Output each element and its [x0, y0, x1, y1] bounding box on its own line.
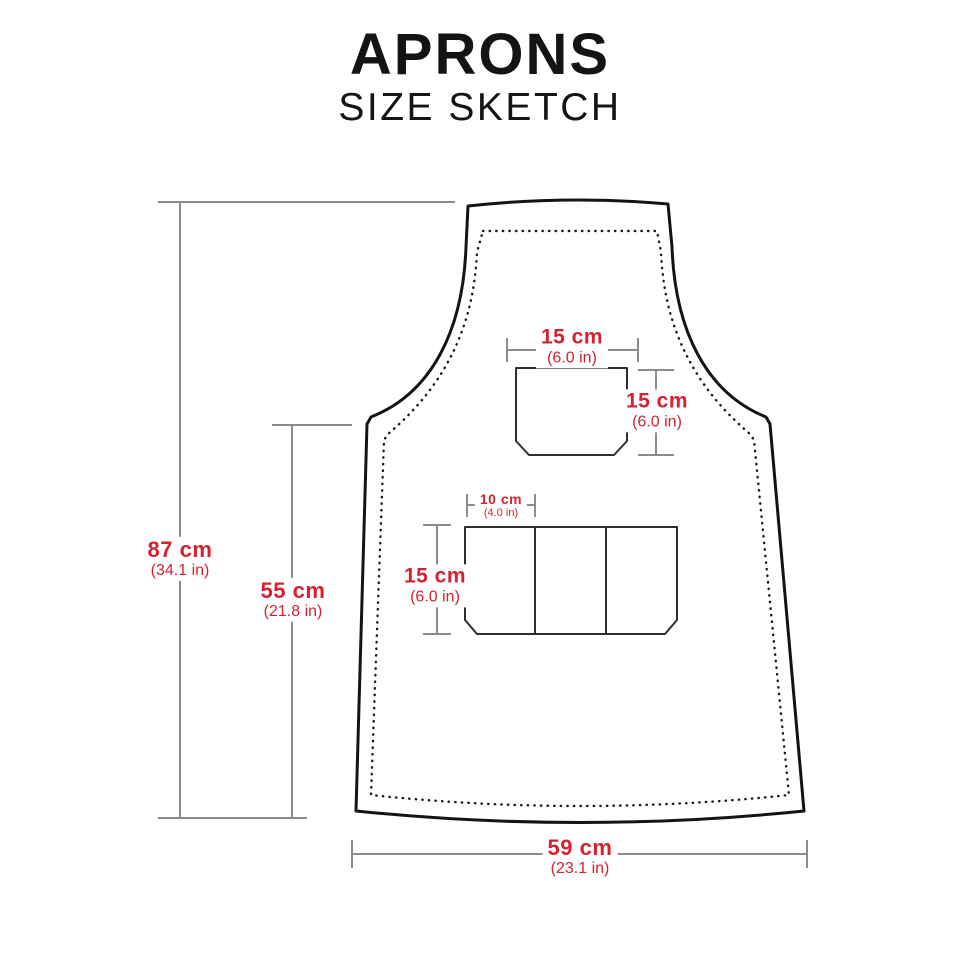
chest-pocket-height-alt: (6.0 in)	[626, 412, 688, 431]
apron-size-sketch-page: APRONS SIZE SKETCH	[0, 0, 960, 960]
waist-pocket-height-value: 15 cm	[404, 565, 466, 587]
chest-pocket-width-alt: (6.0 in)	[541, 348, 603, 367]
bottom-width-label: 59 cm (23.1 in)	[543, 835, 618, 879]
waist-height-value: 55 cm	[261, 579, 326, 602]
chest-pocket-height-value: 15 cm	[626, 390, 688, 412]
chest-pocket-width-label: 15 cm (6.0 in)	[536, 325, 608, 368]
waist-pocket-height-alt: (6.0 in)	[404, 587, 466, 606]
waist-pocket-section-width-alt: (4.0 in)	[480, 507, 522, 520]
apron-outline	[356, 200, 804, 823]
waist-pocket-section-width-label: 10 cm (4.0 in)	[475, 491, 527, 521]
apron-sketch	[0, 0, 960, 960]
bottom-width-value: 59 cm	[548, 836, 613, 859]
chest-pocket-height-label: 15 cm (6.0 in)	[621, 389, 693, 432]
waist-pocket	[465, 527, 677, 634]
waist-height-label: 55 cm (21.8 in)	[256, 578, 331, 622]
waist-height-alt: (21.8 in)	[261, 602, 326, 621]
bottom-width-alt: (23.1 in)	[548, 859, 613, 878]
chest-pocket-width-value: 15 cm	[541, 326, 603, 348]
total-height-alt: (34.1 in)	[148, 561, 213, 580]
total-height-label: 87 cm (34.1 in)	[143, 537, 218, 581]
waist-pocket-section-width-value: 10 cm	[480, 492, 522, 507]
dim-total-height	[158, 202, 455, 818]
total-height-value: 87 cm	[148, 538, 213, 561]
waist-pocket-height-label: 15 cm (6.0 in)	[399, 564, 471, 607]
apron-stitch-line	[371, 231, 789, 806]
chest-pocket	[516, 368, 627, 455]
